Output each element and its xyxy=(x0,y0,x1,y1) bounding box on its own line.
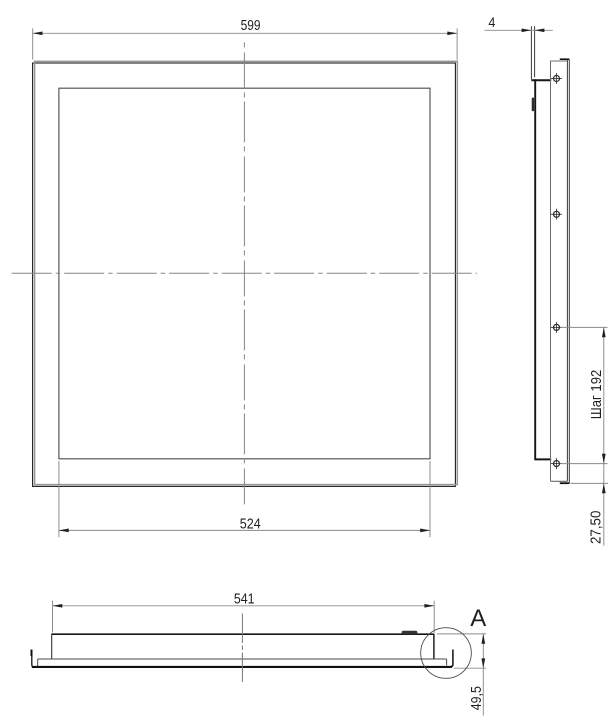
svg-text:4: 4 xyxy=(488,14,495,30)
svg-text:A: A xyxy=(470,605,486,632)
svg-text:599: 599 xyxy=(241,18,261,34)
svg-text:541: 541 xyxy=(234,591,255,607)
svg-text:Шаг 192: Шаг 192 xyxy=(589,370,605,420)
svg-text:524: 524 xyxy=(240,516,261,532)
svg-text:49,5: 49,5 xyxy=(469,686,485,710)
svg-text:27,50: 27,50 xyxy=(589,511,605,545)
